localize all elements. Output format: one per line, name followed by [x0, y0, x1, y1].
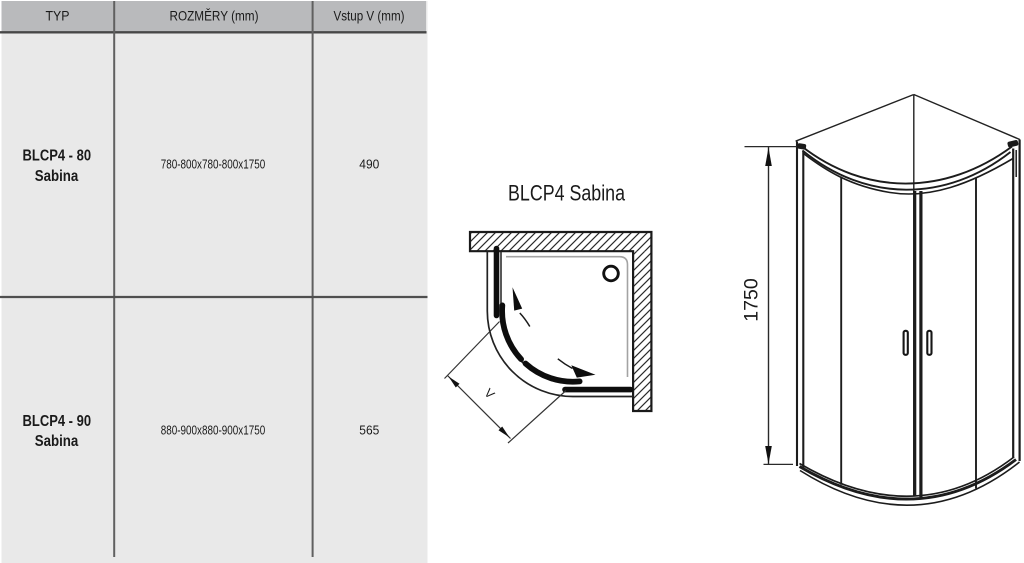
svg-text:TYP: TYP [46, 7, 70, 23]
svg-text:780-800x780-800x1750: 780-800x780-800x1750 [161, 156, 266, 171]
svg-text:BLCP4 - 80: BLCP4 - 80 [23, 148, 92, 165]
svg-text:Sabina: Sabina [35, 168, 79, 185]
svg-text:565: 565 [359, 423, 379, 438]
svg-text:880-900x880-900x1750: 880-900x880-900x1750 [161, 423, 266, 438]
svg-text:490: 490 [359, 156, 379, 171]
svg-text:BLCP4 Sabina: BLCP4 Sabina [508, 181, 626, 206]
svg-text:1750: 1750 [741, 278, 763, 322]
svg-text:Vstup V (mm): Vstup V (mm) [334, 7, 405, 23]
svg-text:Sabina: Sabina [35, 433, 79, 450]
svg-text:ROZMĚRY (mm): ROZMĚRY (mm) [170, 7, 259, 23]
svg-text:BLCP4 - 90: BLCP4 - 90 [23, 413, 92, 430]
